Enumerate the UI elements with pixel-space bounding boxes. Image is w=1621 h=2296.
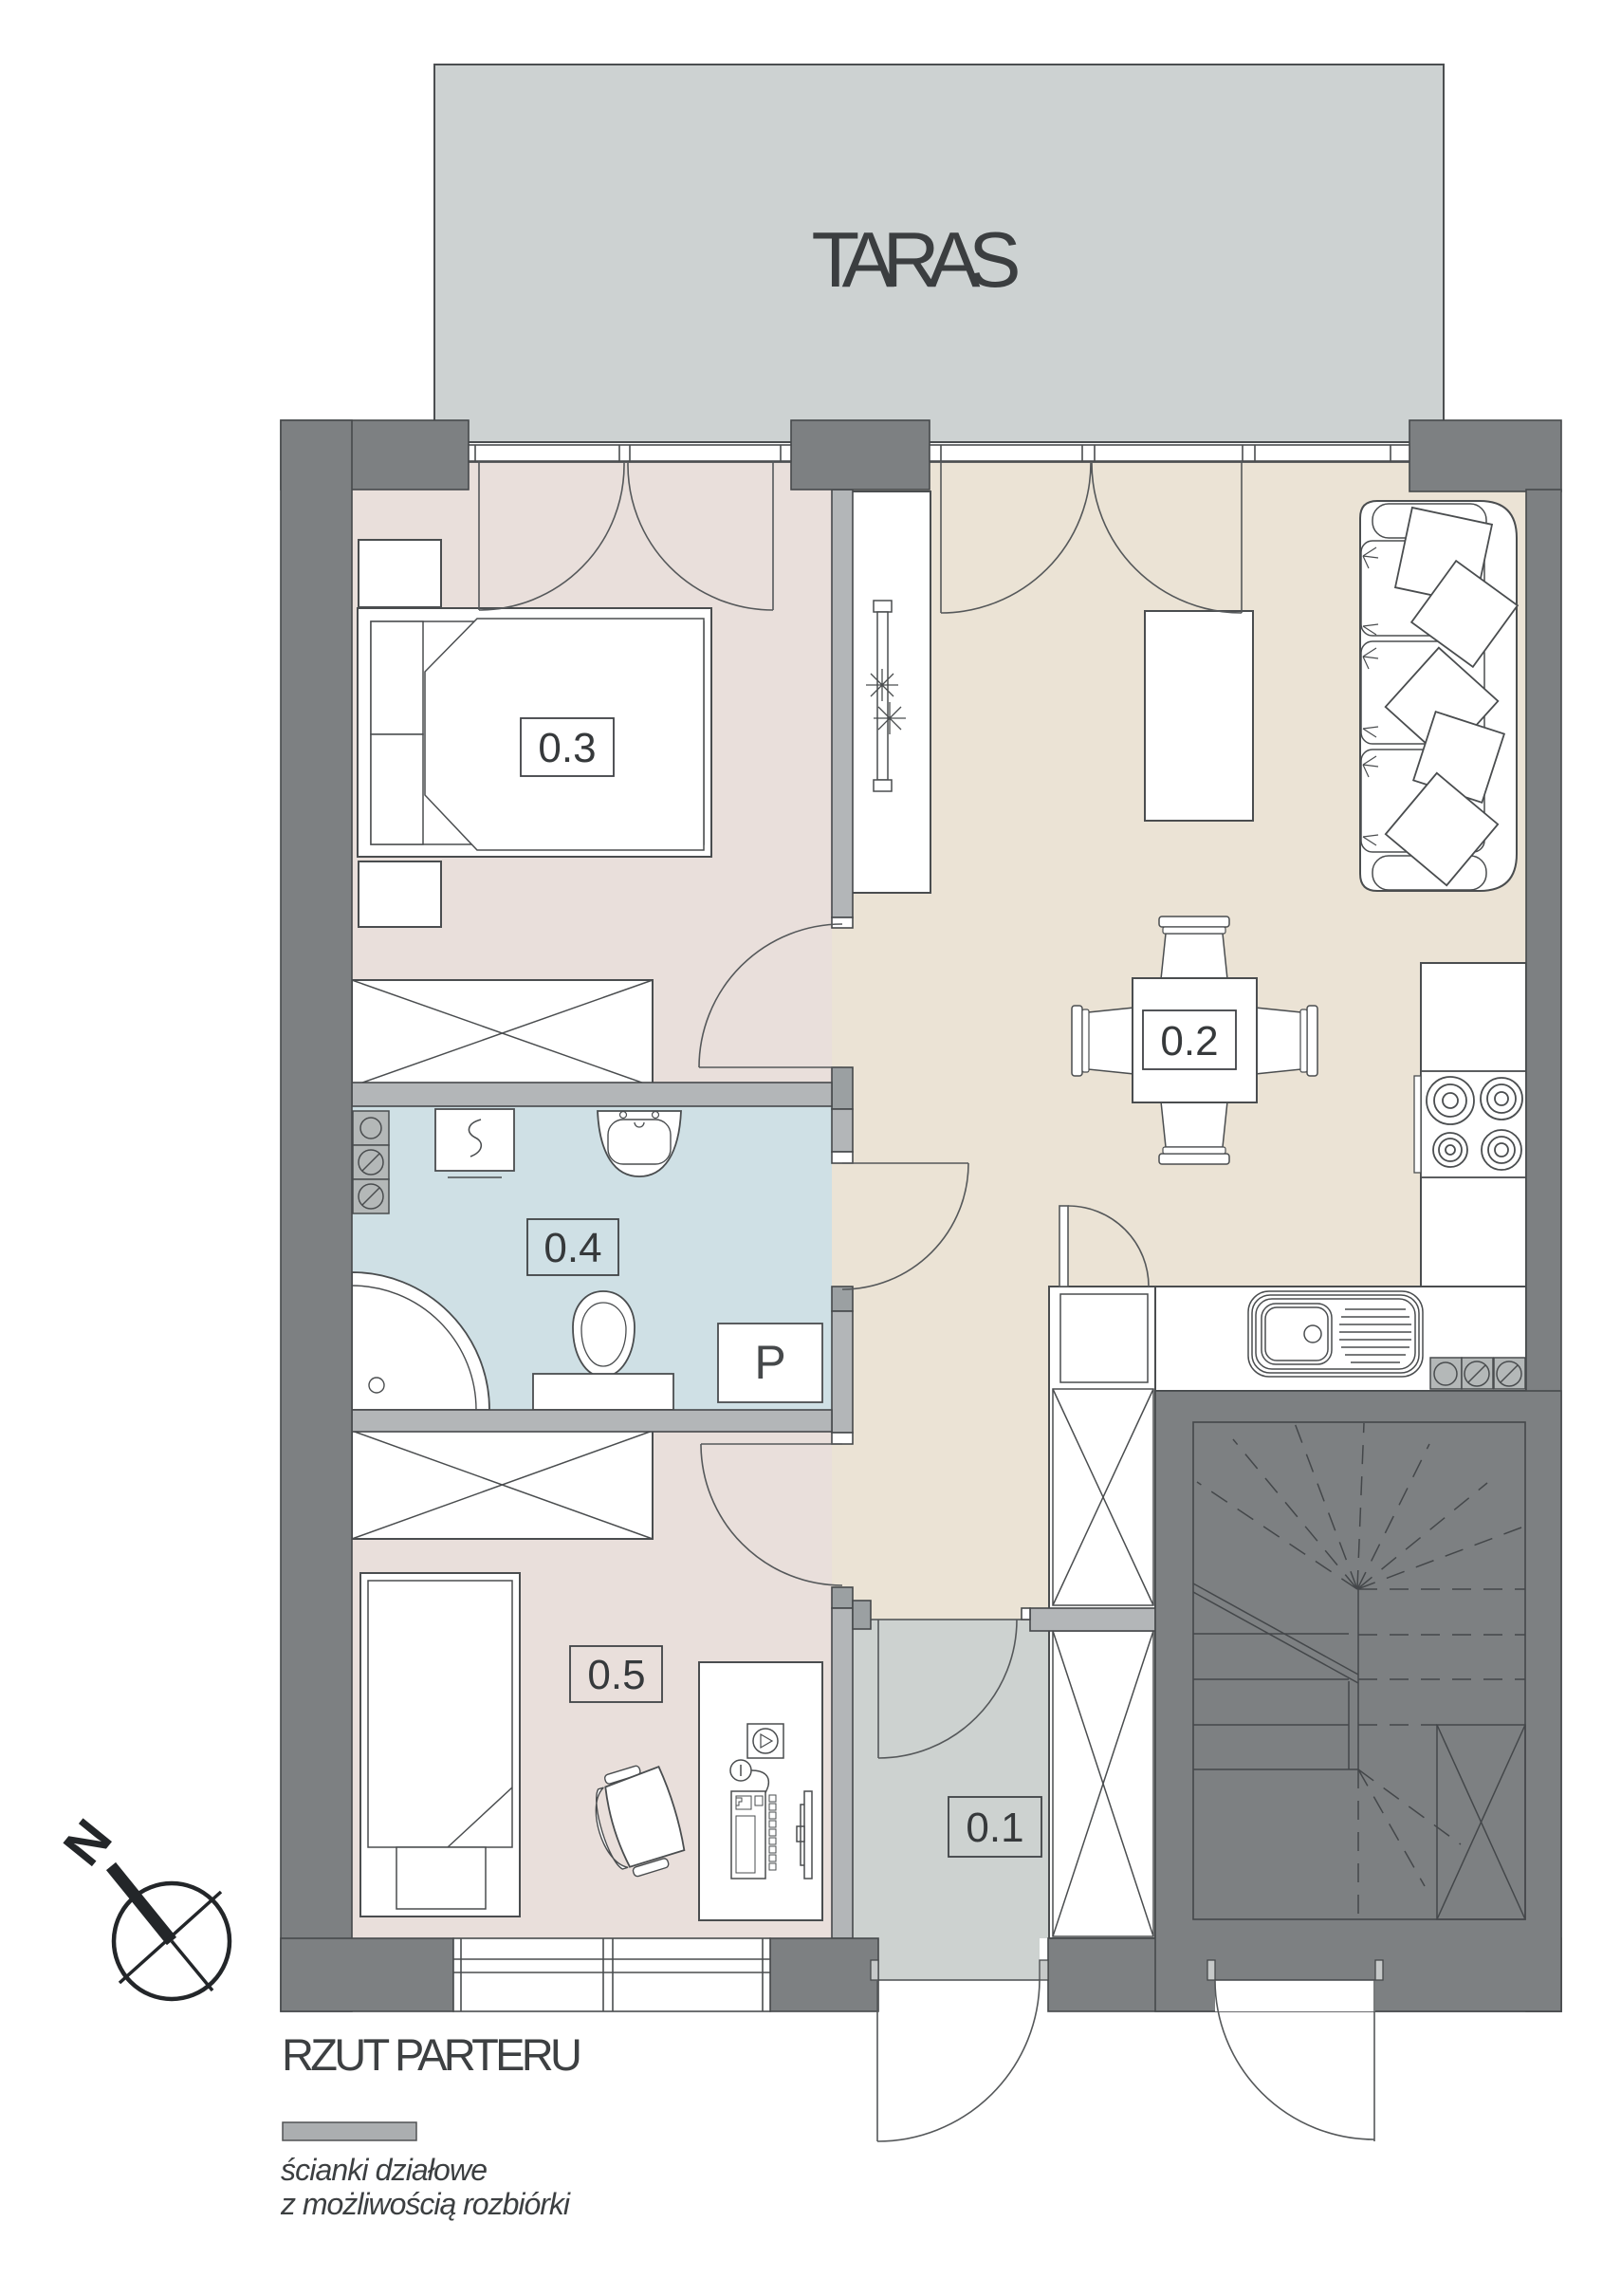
svg-text:0.2: 0.2 xyxy=(1160,1018,1218,1065)
svg-text:0.4: 0.4 xyxy=(543,1225,601,1271)
svg-text:ścianki działowe: ścianki działowe xyxy=(281,2153,488,2187)
svg-text:0.3: 0.3 xyxy=(538,725,596,771)
svg-text:0.5: 0.5 xyxy=(587,1652,645,1698)
svg-text:P: P xyxy=(754,1336,785,1389)
svg-text:z możliwością rozbiórki: z możliwością rozbiórki xyxy=(280,2187,571,2221)
svg-text:RZUT PARTERU: RZUT PARTERU xyxy=(282,2029,582,2080)
svg-text:0.1: 0.1 xyxy=(966,1805,1023,1851)
svg-text:TARAS: TARAS xyxy=(812,215,1022,304)
